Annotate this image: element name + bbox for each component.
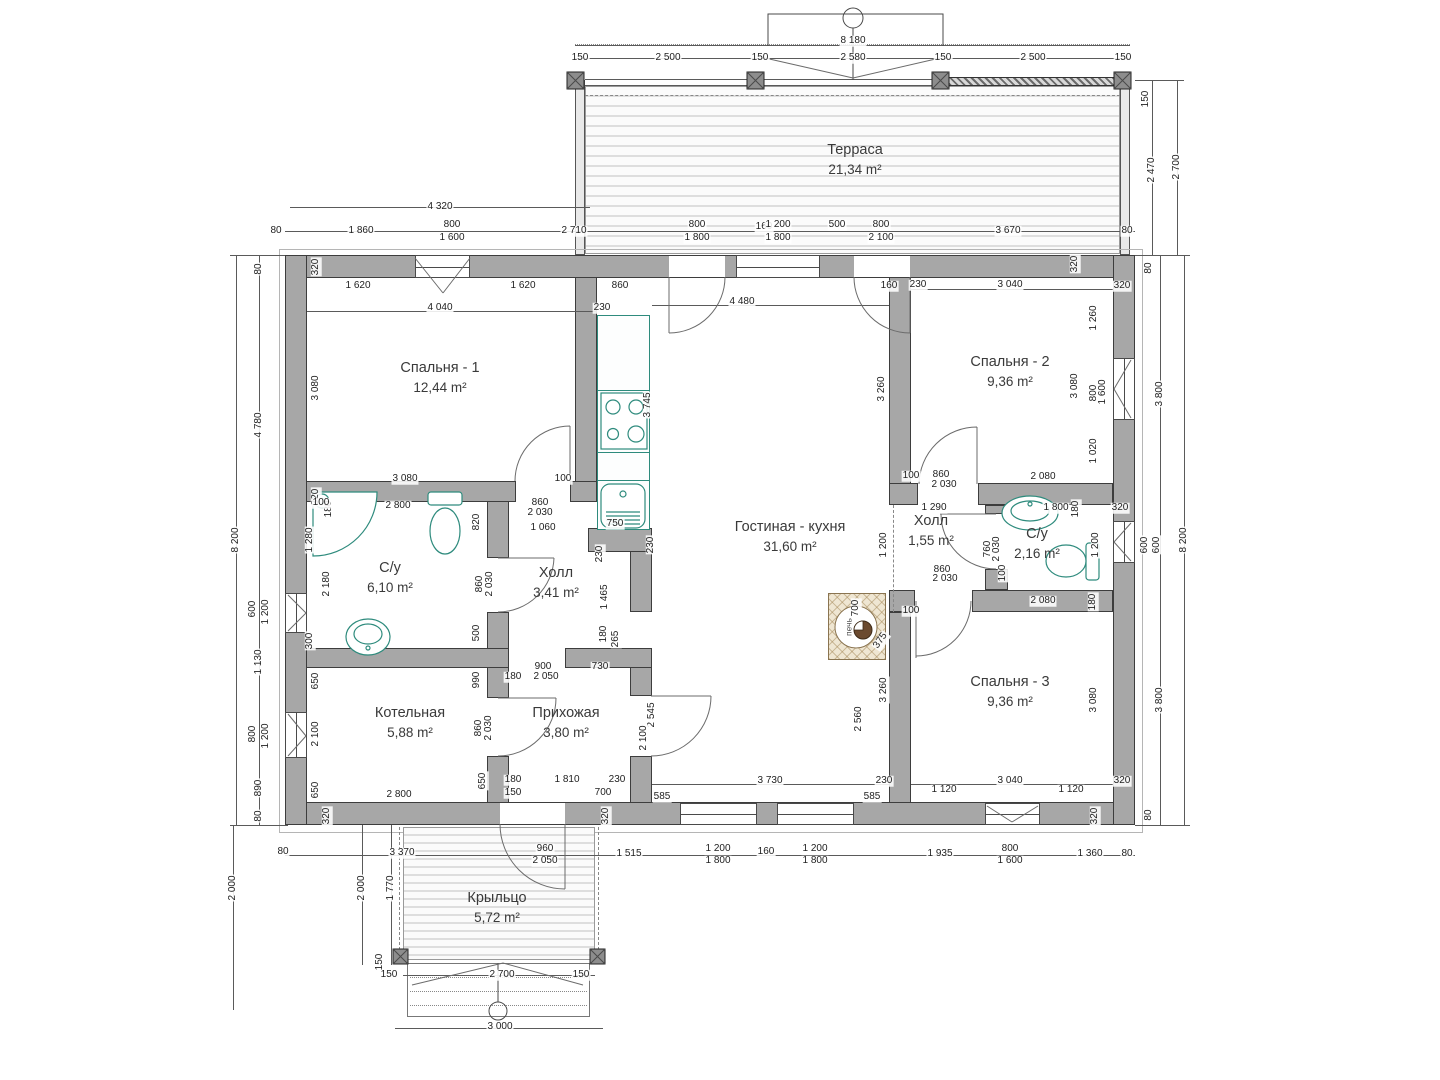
dim-label: 1 800 xyxy=(764,233,791,244)
dim-label: 8 180 xyxy=(839,36,866,47)
dim-label: 2 030 xyxy=(992,535,1003,562)
dim-label: 2 470 xyxy=(1147,156,1158,183)
dim-label: 3 040 xyxy=(996,776,1023,787)
dim-label: 600 xyxy=(1152,536,1163,555)
dim-label: 3 800 xyxy=(1155,380,1166,407)
dim-label: 320 xyxy=(1111,503,1130,514)
room-name: Спальня - 2 xyxy=(970,353,1049,373)
dim-label: 990 xyxy=(472,671,483,690)
room-name: Гостиная - кухня xyxy=(735,518,846,538)
dim-label: 80 xyxy=(254,809,265,822)
dim-label: 3 370 xyxy=(388,848,415,859)
cooktop-icon xyxy=(601,393,647,449)
room-name: Котельная xyxy=(375,704,445,724)
dim-label: 2 100 xyxy=(867,233,894,244)
dim-label: 230 xyxy=(646,536,657,555)
room-area: 1,55 m² xyxy=(908,532,954,550)
dim-label: 80 xyxy=(254,262,265,275)
dim-label: 80 xyxy=(1120,226,1133,237)
dim-label: 180 xyxy=(1071,500,1082,519)
room-area: 5,72 m² xyxy=(467,909,526,927)
dim-label: 150 xyxy=(1141,90,1152,109)
dim-label: 1 465 xyxy=(600,583,611,610)
dim-label: 100 xyxy=(312,498,331,509)
dim-label: 1 770 xyxy=(386,874,397,901)
room-label: С/у2,16 m² xyxy=(1014,525,1060,563)
dim-label: 150 xyxy=(1114,53,1133,64)
dim-label: 800 xyxy=(248,725,259,744)
dim-label: 160 xyxy=(880,281,899,292)
dim-label: 320 xyxy=(1113,776,1132,787)
dim-label: 3 080 xyxy=(311,374,322,401)
room-area: 12,44 m² xyxy=(400,379,479,397)
room-label: Прихожая3,80 m² xyxy=(532,704,599,742)
dim-label: 2 180 xyxy=(322,570,333,597)
dim-label: 150 xyxy=(571,53,590,64)
dim-label: 8 200 xyxy=(1179,526,1190,553)
dim-label: 1 200 xyxy=(261,598,272,625)
dim-label: 80 xyxy=(1120,849,1133,860)
dim-label: 1 360 xyxy=(1076,849,1103,860)
dim-label: 8 200 xyxy=(231,526,242,553)
dim-label: 730 xyxy=(591,662,610,673)
dim-label: 4 320 xyxy=(426,202,453,213)
dim-label: 2 030 xyxy=(930,480,957,491)
dim-label: 1 860 xyxy=(347,226,374,237)
dim-label: 100 xyxy=(554,474,573,485)
dim-label: 3 670 xyxy=(994,226,1021,237)
dim-label: 4 480 xyxy=(728,297,755,308)
dim-label: 1 800 xyxy=(1042,503,1069,514)
dim-label: 320 xyxy=(1090,807,1101,826)
dim-label: 1 620 xyxy=(509,281,536,292)
dim-label: 650 xyxy=(478,772,489,791)
dim-label: 150 xyxy=(380,970,399,981)
dim-label: 1 800 xyxy=(704,856,731,867)
dim-label: 4 780 xyxy=(254,411,265,438)
dim-label: 1 260 xyxy=(1089,304,1100,331)
dim-label: 1 200 xyxy=(879,531,890,558)
dim-label: 2 030 xyxy=(484,714,495,741)
room-label: Спальня - 29,36 m² xyxy=(970,353,1049,391)
room-area: 21,34 m² xyxy=(827,161,883,179)
dim-label: 230 xyxy=(593,303,612,314)
dim-label: 230 xyxy=(909,280,928,291)
dim-label: 3 745 xyxy=(643,391,654,418)
dim-label: 3 080 xyxy=(1070,372,1081,399)
room-name: С/у xyxy=(367,559,413,579)
dim-label: 3 260 xyxy=(879,676,890,703)
room-area: 9,36 m² xyxy=(970,373,1049,391)
dim-label: 1 600 xyxy=(996,856,1023,867)
dim-label: 2 050 xyxy=(531,856,558,867)
dim-label: 320 xyxy=(322,807,333,826)
dim-label: 3 080 xyxy=(391,474,418,485)
dim-label: 3 080 xyxy=(1089,686,1100,713)
dim-label: 1 120 xyxy=(1057,785,1084,796)
dim-label: 1 620 xyxy=(344,281,371,292)
dim-label: 2 580 xyxy=(839,53,866,64)
dim-label: 1 600 xyxy=(1098,378,1109,405)
dim-label: 265 xyxy=(611,630,622,649)
dim-label: 800 xyxy=(872,220,891,231)
dim-label: 320 xyxy=(601,807,612,826)
dim-label: 150 xyxy=(751,53,770,64)
dim-label: 750 xyxy=(606,519,625,530)
room-name: С/у xyxy=(1014,525,1060,545)
dim-label: 80 xyxy=(269,226,282,237)
dim-label: 2 100 xyxy=(639,724,650,751)
dim-label: 1 130 xyxy=(254,648,265,675)
room-name: Холл xyxy=(533,564,579,584)
dim-label: 2 700 xyxy=(488,970,515,981)
room-name: Холл xyxy=(908,512,954,532)
dim-label: 1 515 xyxy=(615,849,642,860)
dim-label: 2 560 xyxy=(854,705,865,732)
dim-label: 300 xyxy=(305,632,316,651)
dim-label: 1 800 xyxy=(801,856,828,867)
dim-label: 3 800 xyxy=(1155,686,1166,713)
dim-label: 585 xyxy=(653,792,672,803)
room-label: Гостиная - кухня31,60 m² xyxy=(735,518,846,556)
dim-label: 1 200 xyxy=(261,722,272,749)
room-label: С/у6,10 m² xyxy=(367,559,413,597)
dim-label: 1 810 xyxy=(553,775,580,786)
dim-label: 700 xyxy=(851,599,862,618)
dim-label: 3 260 xyxy=(877,375,888,402)
dim-label: 80 xyxy=(1144,808,1155,821)
room-name: Спальня - 3 xyxy=(970,673,1049,693)
room-label: Спальня - 39,36 m² xyxy=(970,673,1049,711)
dim-label: 80 xyxy=(276,847,289,858)
room-name: Прихожая xyxy=(532,704,599,724)
dim-label: 100 xyxy=(902,471,921,482)
room-area: 2,16 m² xyxy=(1014,545,1060,563)
room-label: Спальня - 112,44 m² xyxy=(400,359,479,397)
dim-label: 500 xyxy=(472,624,483,643)
dim-label: 650 xyxy=(311,672,322,691)
dim-label: 1 200 xyxy=(704,844,731,855)
dim-label: 585 xyxy=(863,792,882,803)
dim-label: 1 120 xyxy=(930,785,957,796)
dim-label: 3 730 xyxy=(756,776,783,787)
dim-label: 2 700 xyxy=(1172,153,1183,180)
room-area: 3,80 m² xyxy=(532,724,599,742)
room-label: Котельная5,88 m² xyxy=(375,704,445,742)
dim-label: 2 030 xyxy=(526,508,553,519)
dim-label: 180 xyxy=(504,775,523,786)
dim-label: 180 xyxy=(1088,593,1099,612)
dim-label: 2 100 xyxy=(311,720,322,747)
dim-label: 600 xyxy=(1140,536,1151,555)
dim-label: 320 xyxy=(1113,281,1132,292)
room-name: Терраса xyxy=(827,141,883,161)
dim-label: 4 040 xyxy=(426,303,453,314)
stove-label: печь xyxy=(845,617,854,637)
dim-label: 890 xyxy=(254,779,265,798)
dim-label: 320 xyxy=(1070,255,1081,274)
dim-label: 1 600 xyxy=(438,233,465,244)
dim-label: 2 000 xyxy=(357,874,368,901)
dim-label: 2 500 xyxy=(654,53,681,64)
dim-label: 2 800 xyxy=(385,790,412,801)
toilet-icon xyxy=(428,492,462,554)
dim-label: 1 800 xyxy=(683,233,710,244)
dim-label: 1 290 xyxy=(920,503,947,514)
dim-label: 320 xyxy=(311,258,322,277)
room-label: Терраса21,34 m² xyxy=(827,141,883,179)
dim-label: 80 xyxy=(1144,261,1155,274)
dim-label: 700 xyxy=(594,788,613,799)
room-area: 9,36 m² xyxy=(970,693,1049,711)
room-name: Крыльцо xyxy=(467,889,526,909)
dim-label: 2 000 xyxy=(228,874,239,901)
dim-label: 800 xyxy=(1001,844,1020,855)
room-label: Крыльцо5,72 m² xyxy=(467,889,526,927)
dim-label: 1 020 xyxy=(1089,437,1100,464)
dim-label: 650 xyxy=(311,781,322,800)
dim-label: 800 xyxy=(443,220,462,231)
dim-label: 820 xyxy=(472,513,483,532)
room-area: 5,88 m² xyxy=(375,724,445,742)
dim-label: 180 xyxy=(504,672,523,683)
room-label: Холл1,55 m² xyxy=(908,512,954,550)
dim-label: 600 xyxy=(248,600,259,619)
dim-label: 1 200 xyxy=(801,844,828,855)
dim-label: 150 xyxy=(934,53,953,64)
dim-label: 2 050 xyxy=(532,672,559,683)
dim-label: 2 710 xyxy=(560,226,587,237)
symbols-layer xyxy=(0,0,1440,1080)
room-area: 31,60 m² xyxy=(735,538,846,556)
dim-label: 1 200 xyxy=(1091,531,1102,558)
room-name: Спальня - 1 xyxy=(400,359,479,379)
dim-label: 2 800 xyxy=(384,501,411,512)
dim-label: 230 xyxy=(595,545,606,564)
dim-label: 100 xyxy=(998,564,1009,583)
room-area: 6,10 m² xyxy=(367,579,413,597)
dim-label: 860 xyxy=(611,281,630,292)
dim-label: 2 500 xyxy=(1019,53,1046,64)
dim-label: 230 xyxy=(608,775,627,786)
dim-label: 800 xyxy=(688,220,707,231)
dim-label: 3 000 xyxy=(486,1022,513,1033)
dim-label: 160 xyxy=(757,847,776,858)
dim-label: 1 200 xyxy=(764,220,791,231)
dim-label: 230 xyxy=(875,776,894,787)
dim-label: 2 030 xyxy=(485,570,496,597)
dim-label: 180 xyxy=(599,625,610,644)
floor-plan: печь Терраса21,34 m²Спальня - 112,44 m²С… xyxy=(0,0,1440,1080)
room-label: Холл3,41 m² xyxy=(533,564,579,602)
dim-label: 2 030 xyxy=(931,574,958,585)
dim-label: 150 xyxy=(572,970,591,981)
dim-label: 500 xyxy=(828,220,847,231)
dim-label: 1 935 xyxy=(926,849,953,860)
dim-label: 960 xyxy=(536,844,555,855)
dim-label: 1 280 xyxy=(305,526,316,553)
dim-label: 3 040 xyxy=(996,280,1023,291)
dim-label: 2 080 xyxy=(1029,596,1056,607)
room-area: 3,41 m² xyxy=(533,584,579,602)
basin-icon xyxy=(346,619,390,655)
dim-label: 150 xyxy=(504,788,523,799)
dim-label: 100 xyxy=(902,606,921,617)
dim-label: 2 080 xyxy=(1029,472,1056,483)
dim-label: 1 060 xyxy=(529,523,556,534)
